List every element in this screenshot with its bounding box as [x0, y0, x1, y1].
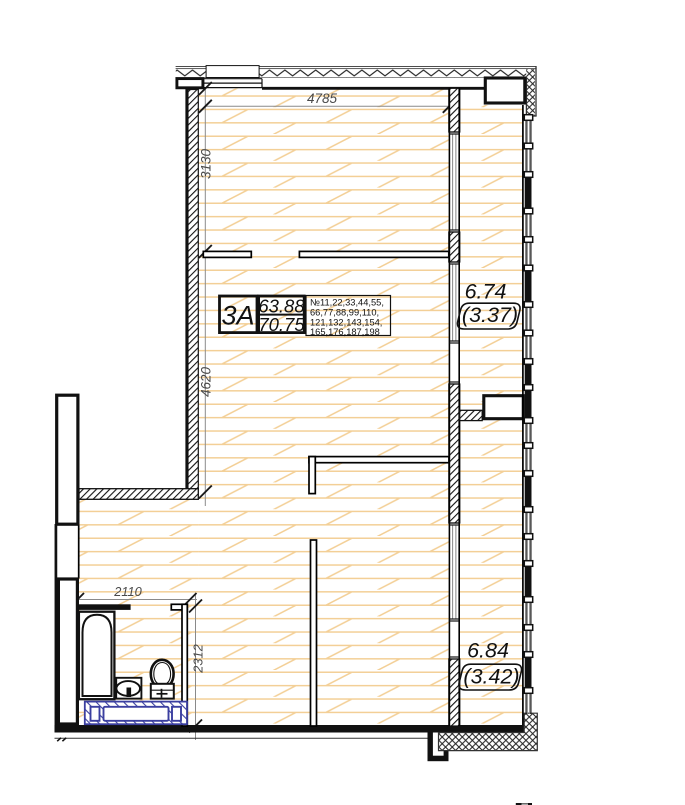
svg-text:(3.37): (3.37) [462, 303, 518, 327]
svg-text:№11,22,33,44,55,: №11,22,33,44,55, [310, 297, 384, 307]
svg-text:3A: 3A [221, 301, 254, 331]
svg-text:6.84: 6.84 [467, 639, 509, 663]
svg-text:(3.42): (3.42) [463, 665, 519, 689]
svg-text:165,176,187,198: 165,176,187,198 [310, 327, 380, 337]
svg-text:66,77,88,99,110,: 66,77,88,99,110, [310, 307, 379, 317]
svg-text:2312: 2312 [191, 644, 206, 673]
svg-text:4785: 4785 [307, 91, 338, 106]
svg-text:70.75: 70.75 [258, 314, 305, 335]
svg-text:2110: 2110 [113, 584, 142, 599]
svg-text:3130: 3130 [199, 148, 214, 179]
svg-text:4620: 4620 [199, 366, 214, 397]
svg-text:121,132,143,154,: 121,132,143,154, [310, 317, 382, 327]
svg-text:6.74: 6.74 [465, 280, 507, 304]
